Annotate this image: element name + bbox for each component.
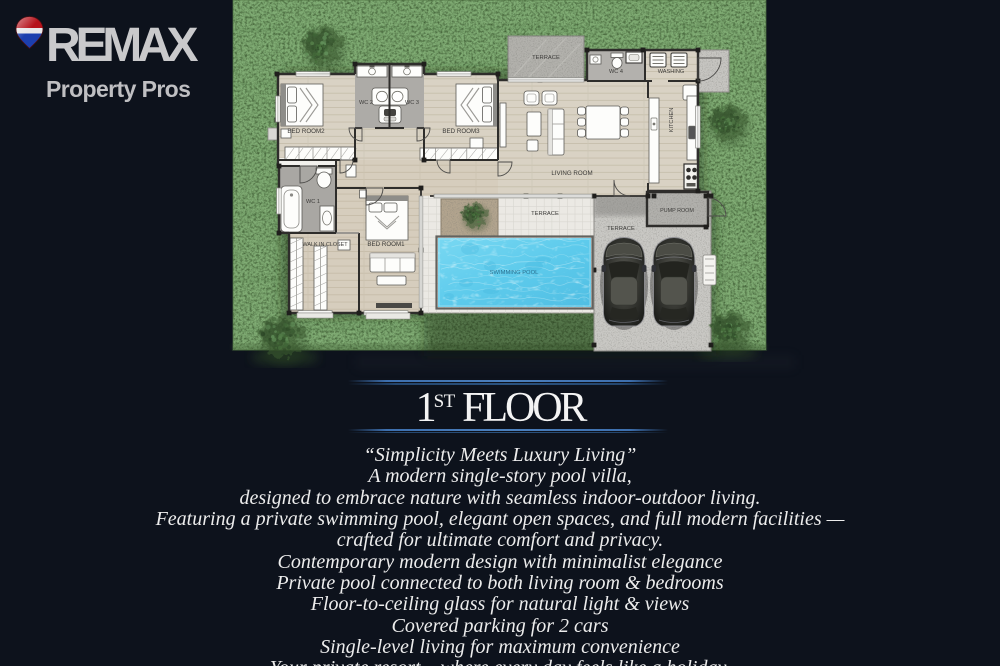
svg-text:WASHING: WASHING [658, 69, 685, 75]
svg-text:PUMP ROOM: PUMP ROOM [660, 208, 694, 214]
svg-text:SWIMMING POOL: SWIMMING POOL [490, 270, 539, 276]
svg-text:BED ROOM1: BED ROOM1 [367, 241, 405, 248]
svg-text:BED ROOM2: BED ROOM2 [287, 128, 325, 135]
svg-text:BED ROOM3: BED ROOM3 [442, 128, 480, 135]
svg-text:TERRACE: TERRACE [531, 211, 559, 217]
svg-text:WALK IN CLOSET: WALK IN CLOSET [302, 242, 348, 248]
svg-text:WC 1: WC 1 [306, 199, 320, 205]
svg-text:WC 2: WC 2 [359, 100, 373, 106]
svg-text:TERRACE: TERRACE [532, 55, 560, 61]
svg-text:TERRACE: TERRACE [607, 226, 635, 232]
svg-text:WC 3: WC 3 [405, 100, 419, 106]
svg-text:LIVING ROOM: LIVING ROOM [551, 170, 592, 177]
svg-text:WC 4: WC 4 [609, 69, 623, 75]
svg-text:KITCHEN: KITCHEN [669, 108, 675, 133]
